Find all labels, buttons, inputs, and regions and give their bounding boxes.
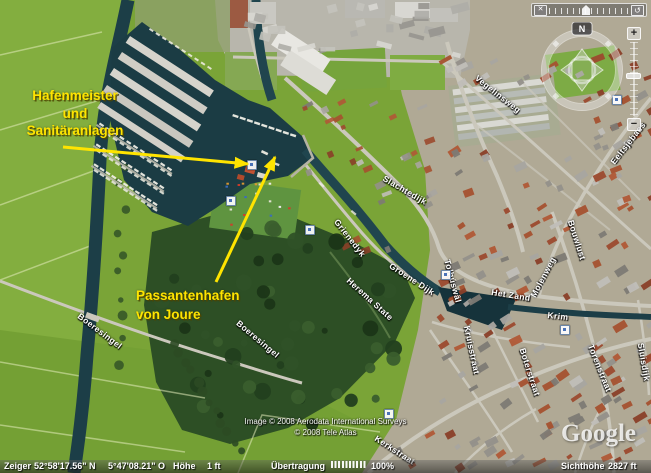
pan-west-arrow[interactable] [561,62,572,78]
pointer-latitude: 52°58'17.56" N [34,461,96,471]
annotation-passantenhafen: Passantenhafen von Joure [136,286,240,324]
arrow-to-passantenhafen [216,157,275,282]
eye-altitude-label: Sichthöhe [561,461,605,471]
status-bar: Zeiger 52°58'17.56" N 5°47'08.21" O Höhe… [0,460,651,473]
zoom-out-button[interactable]: − [627,118,641,131]
copyright-line-1: Image © 2008 Aerodata International Surv… [0,416,651,427]
zoom-handle[interactable] [626,73,641,79]
zoom-track[interactable] [633,42,635,116]
streaming-percent: 100% [371,461,394,471]
zoom-in-button[interactable]: + [627,27,641,40]
compass-navigation-control[interactable]: N [540,22,624,114]
north-label: N [579,24,586,34]
google-logo: Google [561,420,636,448]
streaming-label: Übertragung [271,461,325,471]
time-slider[interactable]: ✕ ↺ [531,3,647,17]
history-icon[interactable]: ↺ [631,5,644,16]
elevation-value: 1 ft [207,461,221,471]
arrow-to-harbourmaster [63,147,248,164]
close-icon[interactable]: ✕ [534,5,547,16]
pan-south-arrow[interactable] [574,80,590,91]
streaming-progress-bars [331,461,367,468]
zoom-slider[interactable]: + − [626,27,642,131]
time-slider-handle[interactable] [582,5,590,15]
eye-altitude-value: 2827 ft [608,461,637,471]
pointer-label: Zeiger [4,461,31,471]
pointer-longitude: 5°47'08.21" O [108,461,165,471]
time-slider-track[interactable] [549,8,631,14]
pan-north-arrow[interactable] [574,49,590,60]
pan-center-ring[interactable] [569,57,595,83]
elevation-label: Höhe [173,461,196,471]
annotation-hafenmeister: Hafenmeister und Sanitäranlagen [12,87,138,140]
copyright-overlay: Image © 2008 Aerodata International Surv… [0,416,651,438]
copyright-line-2: © 2008 Tele Atlas [0,427,651,438]
google-earth-viewport[interactable]: SlachtedijkGrienedykGroene DijkVegelinsw… [0,0,651,473]
pan-east-arrow[interactable] [592,62,603,78]
